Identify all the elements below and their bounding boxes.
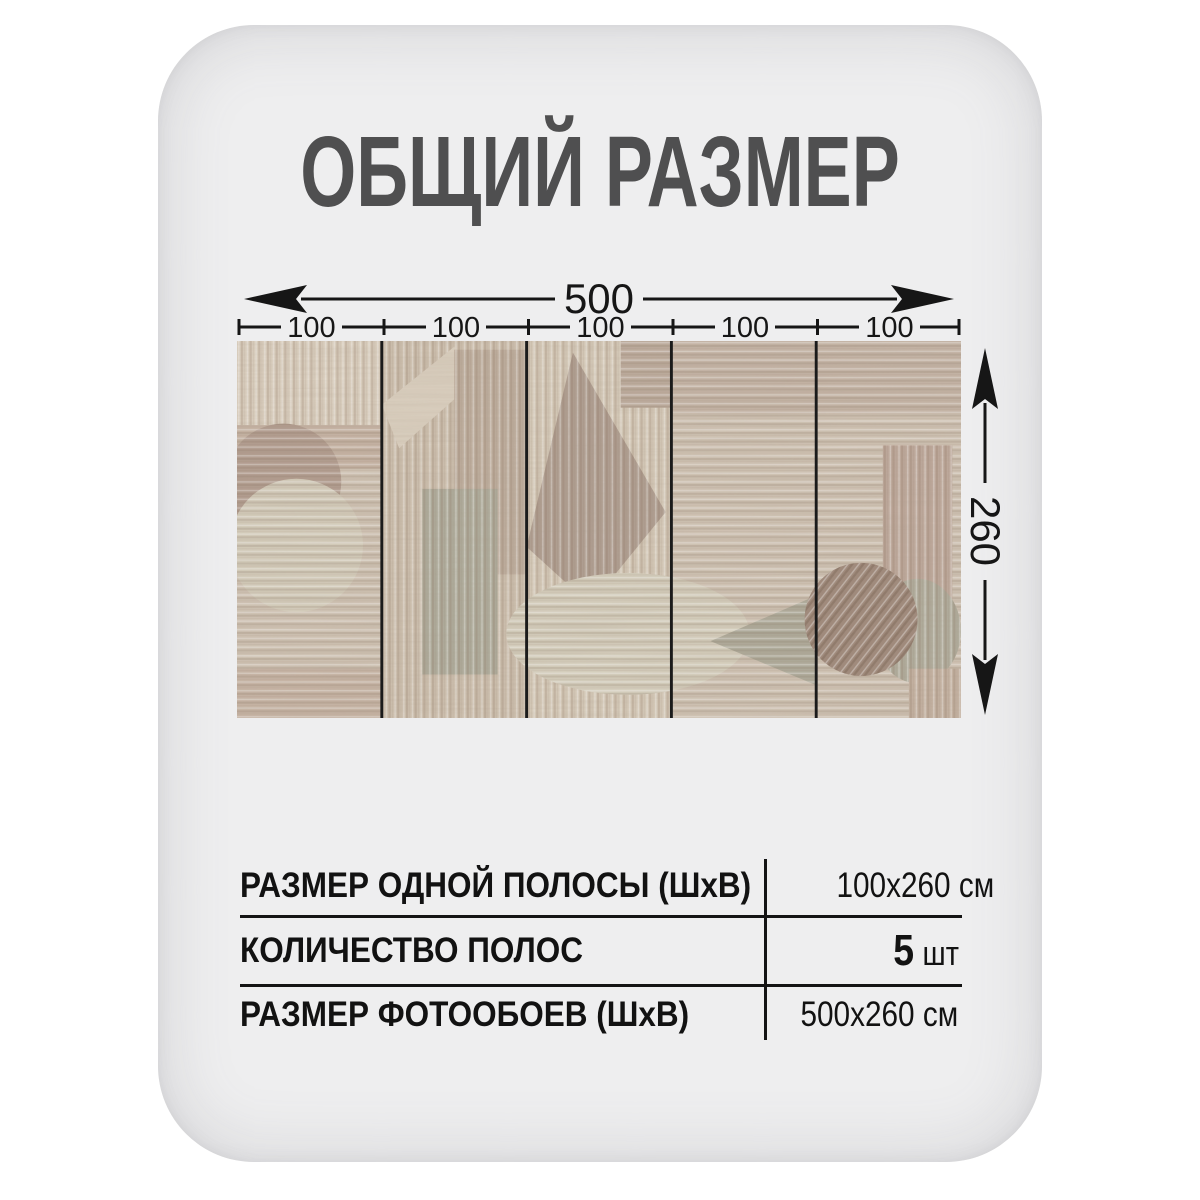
width-dimension-diagram: 500 100 100 100 100 100	[237, 279, 961, 347]
strip-width-label: 100	[721, 312, 769, 344]
row-value: 5шт	[893, 926, 962, 976]
row-label: РАЗМЕР ОДНОЙ ПОЛОСЫ (ШхВ)	[240, 866, 751, 906]
strip-width-label: 100	[576, 312, 624, 344]
table-row: РАЗМЕР ОДНОЙ ПОЛОСЫ (ШхВ) 100х260 см	[240, 856, 962, 915]
row-value: 500х260 см	[801, 995, 962, 1035]
spec-table: РАЗМЕР ОДНОЙ ПОЛОСЫ (ШхВ) 100х260 см КОЛ…	[240, 856, 962, 1042]
strip-width-label: 100	[865, 312, 913, 344]
table-row: РАЗМЕР ФОТООБОЕВ (ШхВ) 500х260 см	[240, 987, 962, 1042]
height-dimension-diagram: 260	[963, 341, 1009, 718]
wallpaper-preview-image	[237, 341, 961, 718]
row-label: РАЗМЕР ФОТООБОЕВ (ШхВ)	[240, 995, 689, 1035]
arrow-right-icon	[891, 285, 954, 313]
arrow-down-icon	[972, 654, 998, 715]
strip-count-value: 5	[893, 926, 914, 975]
height-value: 260	[962, 496, 1009, 566]
strip-width-label: 100	[432, 312, 480, 344]
page-title: ОБЩИЙ РАЗМЕР	[168, 122, 1032, 232]
strip-count-unit: шт	[922, 935, 958, 973]
arrow-up-icon	[972, 348, 998, 409]
table-column-divider	[764, 859, 767, 1040]
strip-width-label: 100	[287, 312, 335, 344]
row-label: КОЛИЧЕСТВО ПОЛОС	[240, 931, 583, 971]
arrow-left-icon	[244, 285, 307, 313]
row-value: 100х260 см	[836, 866, 997, 906]
table-row: КОЛИЧЕСТВО ПОЛОС 5шт	[240, 918, 962, 984]
